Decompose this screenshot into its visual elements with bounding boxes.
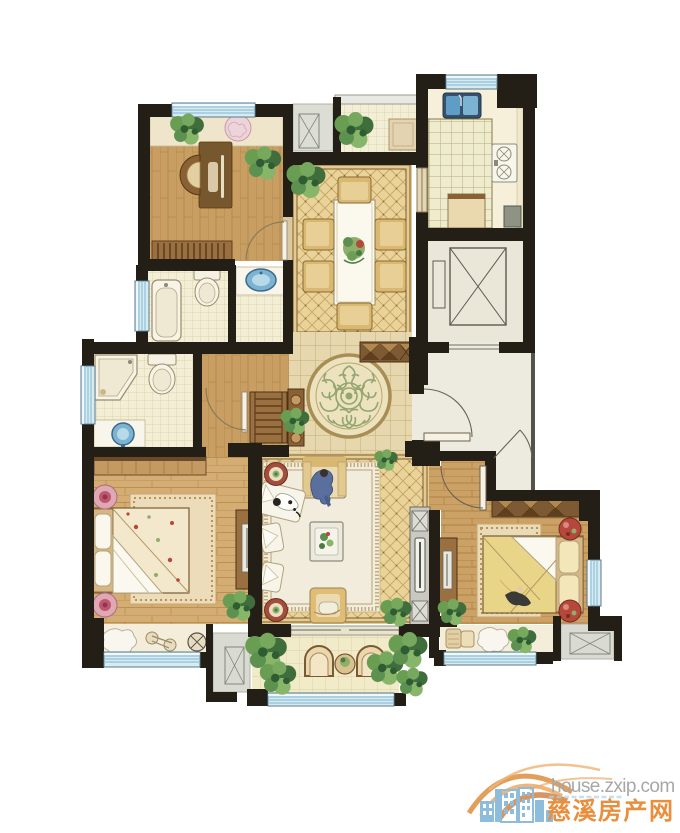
svg-text:慈溪房产网: 慈溪房产网	[547, 797, 675, 825]
svg-text:house.zxip.com: house.zxip.com	[551, 776, 675, 797]
